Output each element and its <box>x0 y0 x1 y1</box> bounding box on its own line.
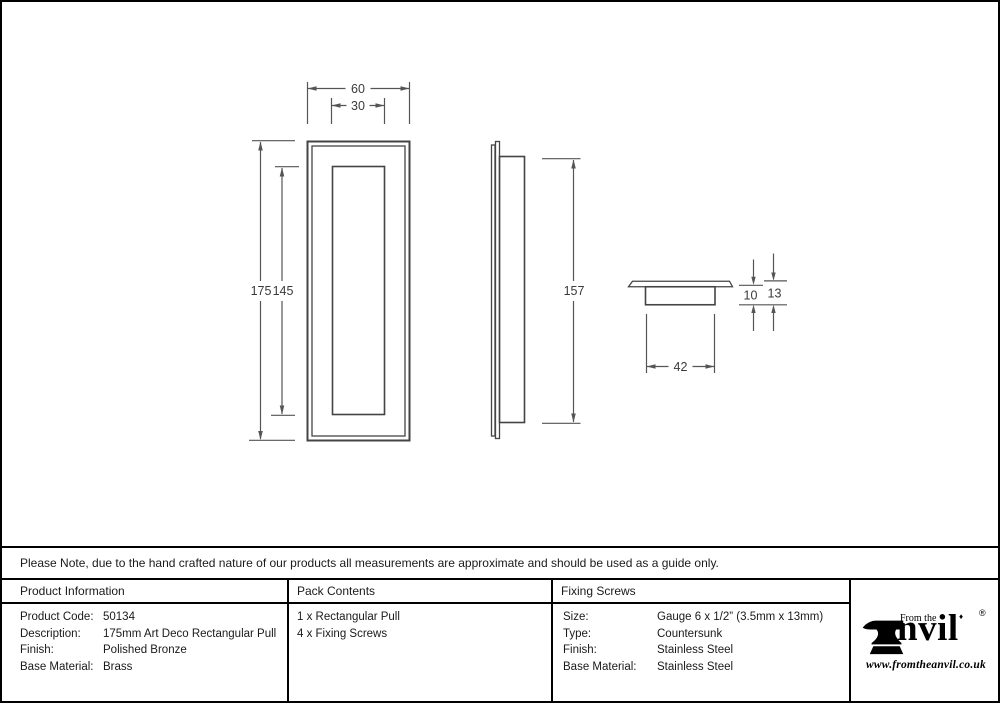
row-value: Polished Bronze <box>103 642 187 659</box>
pack-contents-header: Pack Contents <box>289 580 551 604</box>
row-value: Gauge 6 x 1/2” (3.5mm x 13mm) <box>657 609 823 626</box>
row-value: Stainless Steel <box>657 659 733 676</box>
row-value: Countersunk <box>657 626 722 643</box>
dim-label-157: 157 <box>564 284 585 298</box>
row-label: Type: <box>563 626 657 643</box>
registered-trademark-icon: ® <box>979 608 986 618</box>
row-label: Base Material: <box>563 659 657 676</box>
row-label: Finish: <box>20 642 103 659</box>
row-value: Brass <box>103 659 132 676</box>
row-label: Description: <box>20 626 103 643</box>
table-row: Size: Gauge 6 x 1/2” (3.5mm x 13mm) <box>563 609 849 626</box>
brand-logo-cell: From the ♦ nvil ® www.fromtheanvil.co.uk <box>849 580 998 701</box>
dim-label-145: 145 <box>273 284 294 298</box>
row-value: 175mm Art Deco Rectangular Pull <box>103 626 276 643</box>
top-view <box>629 281 733 305</box>
row-value: 50134 <box>103 609 135 626</box>
product-information-header: Product Information <box>2 580 287 604</box>
row-label: Base Material: <box>20 659 103 676</box>
from-the-anvil-logo: From the ♦ nvil ® www.fromtheanvil.co.uk <box>861 600 991 682</box>
logo-wordmark: nvil <box>897 610 959 647</box>
table-row: Description: 175mm Art Deco Rectangular … <box>20 626 287 643</box>
dim-label-42: 42 <box>674 360 688 374</box>
list-item: 1 x Rectangular Pull <box>297 609 551 626</box>
diamond-tittle-icon: ♦ <box>959 612 963 621</box>
technical-drawing: 60 30 175 <box>2 2 998 546</box>
table-row: Product Code: 50134 <box>20 609 287 626</box>
front-view <box>308 142 410 441</box>
row-label: Product Code: <box>20 609 103 626</box>
table-row: Base Material: Stainless Steel <box>563 659 849 676</box>
note-text: Please Note, due to the hand crafted nat… <box>20 556 719 570</box>
side-view <box>492 142 525 439</box>
pack-contents-column: Pack Contents 1 x Rectangular Pull 4 x F… <box>287 580 551 701</box>
product-information-column: Product Information Product Code: 50134 … <box>2 580 287 701</box>
dim-cup-depth: 10 <box>739 260 763 332</box>
table-row: Finish: Polished Bronze <box>20 642 287 659</box>
info-table: Product Information Product Code: 50134 … <box>2 580 998 701</box>
dim-label-30: 30 <box>351 99 365 113</box>
table-row: Finish: Stainless Steel <box>563 642 849 659</box>
drawing-svg: 60 30 175 <box>2 2 998 546</box>
dim-label-10: 10 <box>744 289 758 303</box>
table-row: Type: Countersunk <box>563 626 849 643</box>
dim-side-height: 157 <box>542 159 584 424</box>
dim-label-175: 175 <box>251 284 272 298</box>
product-datasheet: 60 30 175 <box>0 0 1000 703</box>
fixing-screws-column: Fixing Screws Size: Gauge 6 x 1/2” (3.5m… <box>551 580 849 701</box>
row-value: Stainless Steel <box>657 642 733 659</box>
fixing-screws-header: Fixing Screws <box>553 580 849 604</box>
table-row: Base Material: Brass <box>20 659 287 676</box>
dim-label-60: 60 <box>351 82 365 96</box>
dim-cup-width: 42 <box>647 314 715 374</box>
note-bar: Please Note, due to the hand crafted nat… <box>2 546 998 580</box>
dim-front-inner-width: 30 <box>332 98 385 124</box>
list-item: 4 x Fixing Screws <box>297 626 551 643</box>
dim-front-inner-height: 145 <box>271 167 299 416</box>
logo-website: www.fromtheanvil.co.uk <box>861 659 991 671</box>
dim-label-13: 13 <box>768 287 782 301</box>
row-label: Size: <box>563 609 657 626</box>
row-label: Finish: <box>563 642 657 659</box>
